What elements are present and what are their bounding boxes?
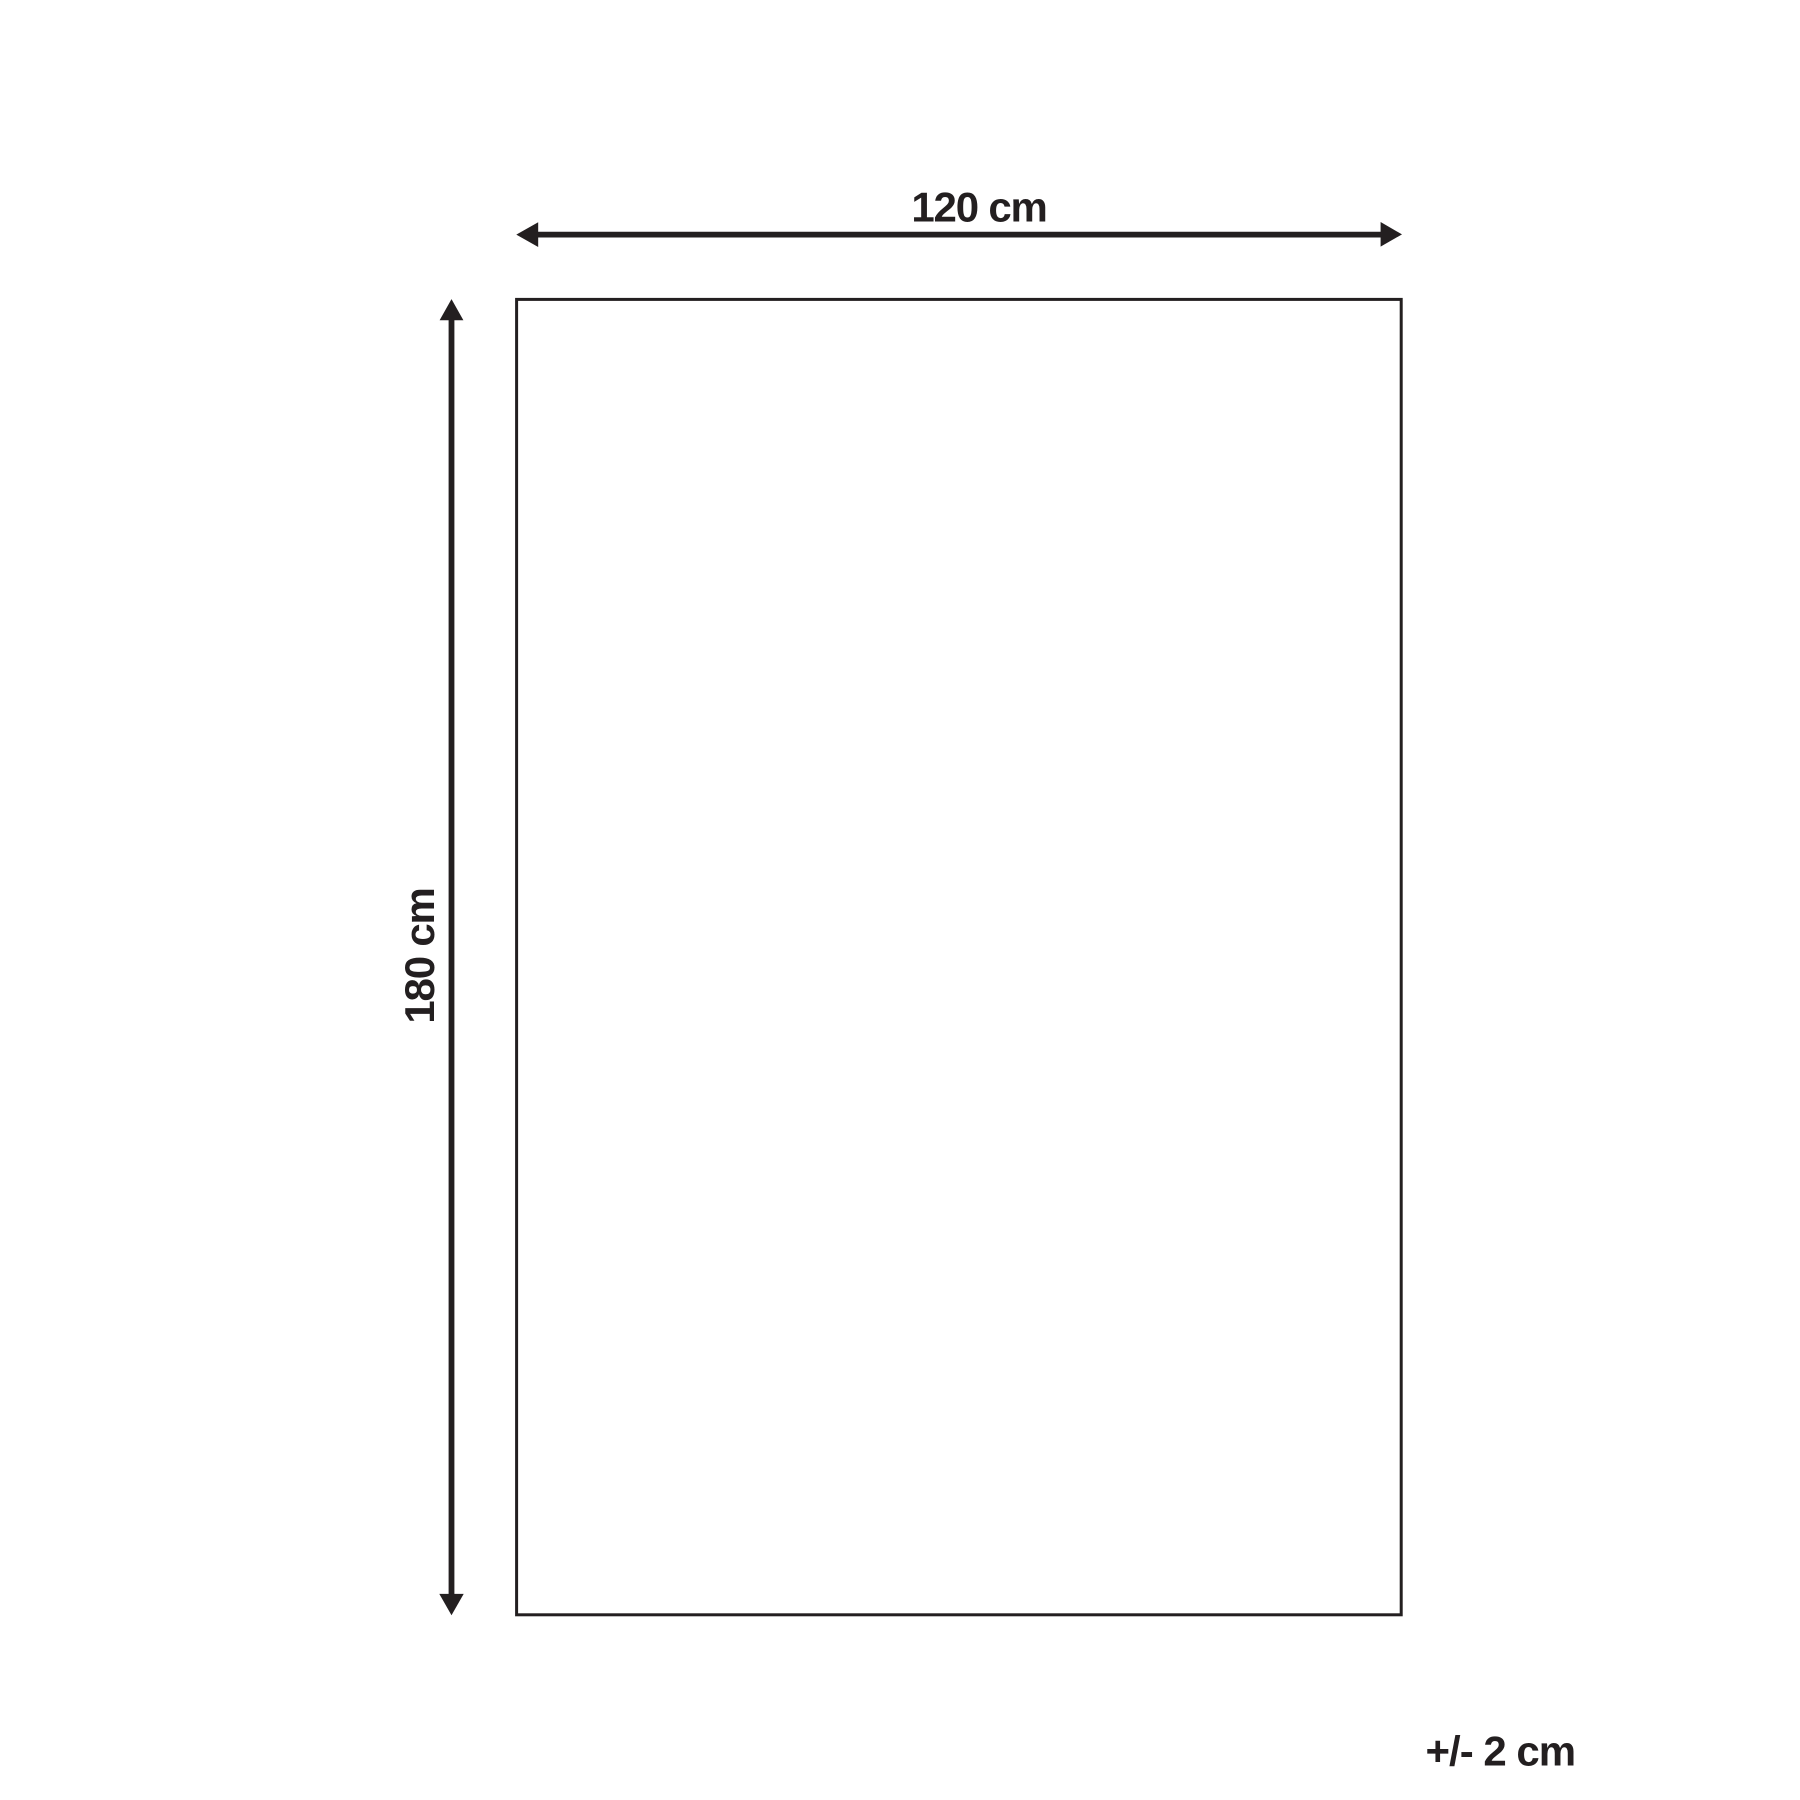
svg-text:180 cm: 180 cm [396, 888, 443, 1023]
svg-text:120 cm: 120 cm [911, 184, 1046, 231]
svg-text:+/- 2 cm: +/- 2 cm [1426, 1727, 1576, 1774]
